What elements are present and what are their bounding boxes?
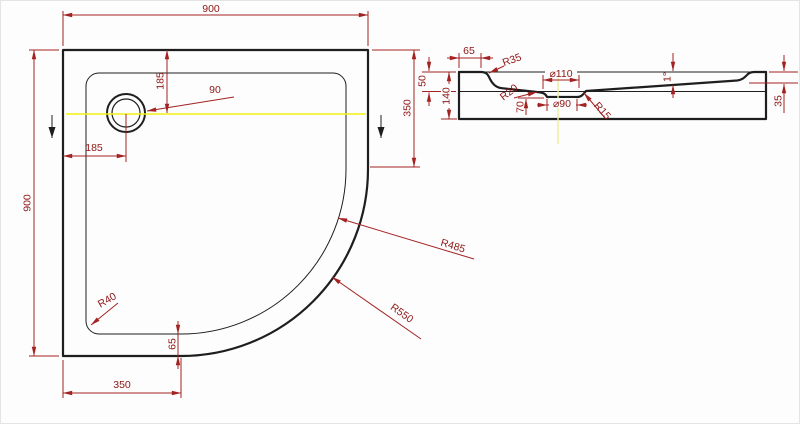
leader-inner-arc-radius: R485 xyxy=(338,218,474,259)
plan-view: 900 900 185 90 185 xyxy=(22,3,475,398)
dim-label-outer-arc-radius: R550 xyxy=(388,301,416,325)
dim-plan-width-top: 900 xyxy=(63,3,368,46)
dim-label-flange-width: 65 xyxy=(463,45,475,57)
dim-label-waste-top-diameter: ⌀110 xyxy=(549,68,572,80)
dim-label-waste-left-radius: R20 xyxy=(498,82,521,103)
dim-label-total-height: 140 xyxy=(441,87,453,105)
dim-label-plan-width-top: 900 xyxy=(202,3,220,15)
dim-right-straight: 350 xyxy=(370,50,420,167)
section-view: 65 R35 50 140 xyxy=(417,45,799,144)
dim-waste-bottom-diameter: ⌀90 xyxy=(537,98,587,111)
dim-label-drain-from-top: 185 xyxy=(155,72,167,90)
dim-label-waste-bottom-diameter: ⌀90 xyxy=(553,98,571,110)
dim-back-depth: 35 xyxy=(749,55,798,113)
shower-tray-drawing: 900 900 185 90 185 xyxy=(1,1,800,425)
dim-drain-from-left: 185 xyxy=(63,114,126,162)
dim-rim-offset: 65 xyxy=(167,321,179,369)
dim-label-inner-corner-radius: R40 xyxy=(96,290,119,310)
dim-drain-from-top: 185 xyxy=(155,50,168,113)
dim-label-waste-depth: 70 xyxy=(515,101,527,113)
dim-label-rim-offset: 65 xyxy=(167,338,179,350)
dim-label-bottom-straight: 350 xyxy=(113,379,131,391)
leader-waste-left-radius: R20 xyxy=(498,82,537,103)
leader-flange-radius: R35 xyxy=(489,51,523,73)
dim-waste-top-diameter: ⌀110 xyxy=(543,68,579,89)
dim-bottom-straight: 350 xyxy=(63,358,181,398)
dim-label-drain-from-left: 185 xyxy=(85,142,103,154)
dim-waste-depth: 70 xyxy=(515,98,545,115)
dim-label-right-straight: 350 xyxy=(402,99,414,117)
dim-label-drain-diameter: 90 xyxy=(209,84,221,96)
dim-total-height: 140 xyxy=(441,72,458,119)
dim-flange-width: 65 xyxy=(447,45,493,68)
leader-line xyxy=(332,277,421,339)
dim-plan-height-left: 900 xyxy=(22,50,60,356)
dim-label-plan-height-left: 900 xyxy=(22,194,34,212)
leader-outer-arc-radius: R550 xyxy=(332,277,421,339)
dim-label-front-depth: 50 xyxy=(417,75,429,87)
leader-line xyxy=(338,218,474,259)
technical-drawing-canvas: 900 900 185 90 185 xyxy=(0,0,800,424)
dim-label-floor-slope: 1° xyxy=(662,72,674,82)
leader-waste-right-radius: R15 xyxy=(584,93,613,122)
plan-inner-outline xyxy=(86,73,346,334)
leader-inner-corner-radius: R40 xyxy=(91,290,119,325)
dim-label-flange-radius: R35 xyxy=(501,51,523,69)
dim-label-back-depth: 35 xyxy=(773,95,785,107)
leader-line xyxy=(147,97,234,111)
